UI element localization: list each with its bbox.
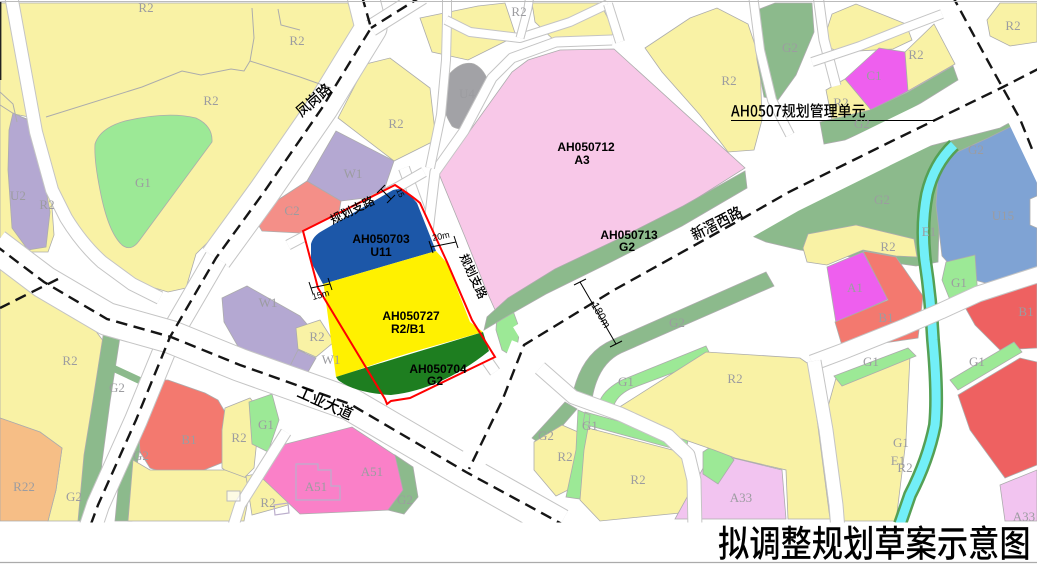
svg-text:U11: U11: [370, 245, 392, 259]
svg-text:W1: W1: [344, 166, 363, 181]
svg-text:G2: G2: [619, 240, 635, 254]
svg-text:G1: G1: [258, 417, 274, 432]
svg-text:R2: R2: [39, 197, 54, 212]
svg-text:C1: C1: [866, 68, 881, 83]
svg-text:A51: A51: [361, 464, 383, 479]
svg-text:G2: G2: [968, 142, 984, 157]
svg-text:A33: A33: [1013, 509, 1035, 524]
svg-text:G2: G2: [538, 428, 554, 443]
svg-text:A1: A1: [847, 280, 863, 295]
svg-text:E1: E1: [891, 453, 905, 468]
svg-text:G2: G2: [66, 489, 82, 504]
svg-text:A3: A3: [574, 153, 590, 167]
svg-text:R2: R2: [388, 116, 403, 131]
svg-text:R2: R2: [138, 0, 153, 15]
svg-text:G2: G2: [854, 116, 870, 131]
svg-text:B1: B1: [878, 310, 893, 325]
svg-text:G2: G2: [669, 315, 685, 330]
svg-text:R2: R2: [880, 239, 895, 254]
svg-text:R2/B1: R2/B1: [391, 322, 425, 336]
svg-text:R2: R2: [309, 329, 324, 344]
svg-text:AH050712: AH050712: [557, 140, 615, 154]
svg-text:R2: R2: [908, 47, 923, 62]
svg-text:G1: G1: [951, 275, 967, 290]
svg-text:B1: B1: [181, 432, 196, 447]
svg-text:R2: R2: [630, 472, 645, 487]
svg-text:G1: G1: [135, 175, 151, 190]
svg-text:G1: G1: [893, 435, 909, 450]
svg-text:G1: G1: [582, 418, 598, 433]
svg-text:R2: R2: [62, 353, 77, 368]
svg-text:U2: U2: [10, 188, 26, 203]
svg-text:A51: A51: [305, 479, 327, 494]
svg-text:G2: G2: [133, 448, 149, 463]
svg-text:R22: R22: [13, 479, 35, 494]
svg-text:R2: R2: [1005, 18, 1020, 33]
svg-text:R2: R2: [289, 33, 304, 48]
svg-text:C2: C2: [284, 203, 299, 218]
svg-text:G2: G2: [782, 40, 798, 55]
svg-text:R2: R2: [511, 4, 526, 19]
svg-text:G2: G2: [874, 192, 890, 207]
svg-text:R2: R2: [721, 73, 736, 88]
svg-text:B1: B1: [1018, 304, 1033, 319]
svg-text:R2: R2: [260, 495, 275, 510]
svg-text:G1: G1: [969, 354, 985, 369]
svg-text:W1: W1: [322, 352, 341, 367]
svg-text:R2: R2: [231, 430, 246, 445]
svg-text:W1: W1: [259, 295, 278, 310]
svg-text:G2: G2: [427, 374, 443, 388]
svg-text:R2: R2: [557, 449, 572, 464]
svg-text:G2: G2: [397, 492, 413, 507]
svg-text:A33: A33: [730, 490, 752, 505]
svg-text:AH050727: AH050727: [382, 309, 440, 323]
svg-text:G2: G2: [109, 380, 125, 395]
svg-text:AH050703: AH050703: [352, 232, 410, 246]
svg-text:U15: U15: [992, 208, 1014, 223]
svg-text:G1: G1: [618, 374, 634, 389]
svg-text:U4: U4: [459, 86, 475, 101]
svg-text:R2: R2: [203, 93, 218, 108]
svg-text:R2: R2: [727, 371, 742, 386]
svg-text:G1: G1: [863, 354, 879, 369]
svg-text:E1: E1: [922, 224, 936, 239]
